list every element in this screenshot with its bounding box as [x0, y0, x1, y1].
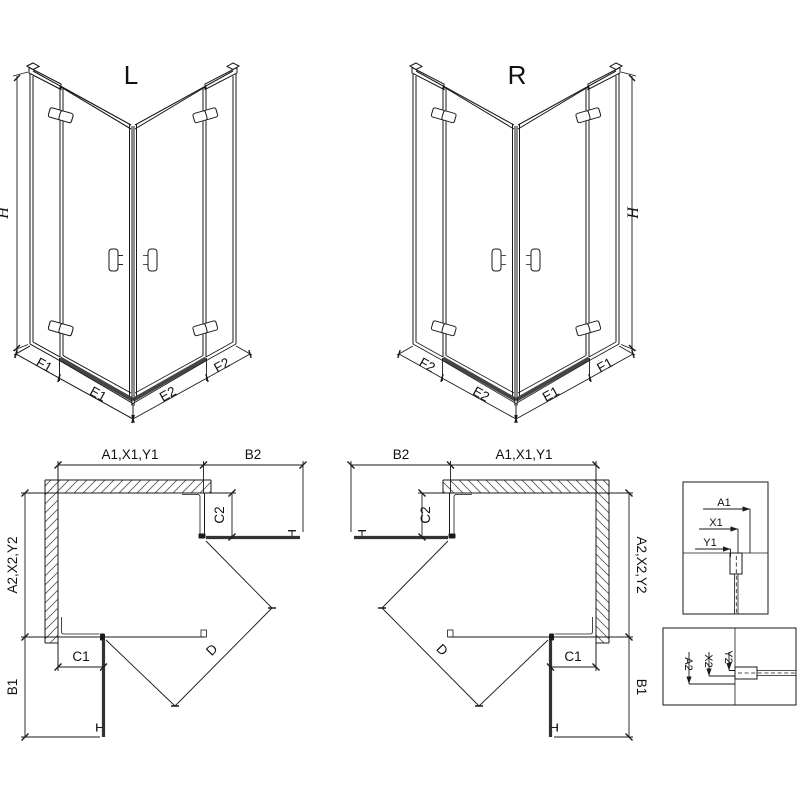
glass-section	[757, 671, 796, 676]
label-c1-left-plan: C1	[72, 649, 89, 664]
label-c1-right-plan: C1	[564, 649, 581, 664]
label-top-chain-left-plan: A1,X1,Y1	[101, 447, 158, 462]
label-f1-left: F1	[34, 355, 55, 376]
label-f2-right: F2	[417, 355, 438, 376]
dim-line-h	[13, 72, 28, 351]
door-pivot-bottom	[100, 634, 105, 641]
arrow-y2	[726, 663, 731, 671]
label-side-chain-right-plan: A2,X2,Y2	[634, 536, 649, 593]
left-wall-half	[14, 63, 134, 423]
label-detail-y1: Y1	[703, 537, 716, 549]
dim-a2-b1	[21, 493, 100, 737]
arrow-y1	[723, 546, 731, 551]
label-side-chain-left-plan: A2,X2,Y2	[5, 536, 20, 593]
label-height-right: H	[625, 206, 642, 220]
fixed-glass-bracket-top	[182, 495, 200, 535]
right-wall-half	[132, 63, 252, 423]
dim-a1-b2	[58, 461, 303, 532]
label-variant-left: L	[124, 60, 138, 90]
fixed-glass-bracket-bottom	[62, 617, 100, 634]
plan-view-geometry	[21, 461, 307, 741]
plan-dimension-geometry	[21, 461, 307, 741]
label-detail-x2: X2	[702, 654, 714, 667]
shower-enclosure-dimension-drawing: L H F1 E1 E2 F2 R H F2 E2 E1 F1 A1,X1,Y1…	[0, 0, 800, 800]
label-detail-a1: A1	[717, 497, 730, 509]
dim-extension-lines	[14, 346, 133, 421]
label-d-right-plan: D	[433, 641, 451, 659]
label-b2-left-plan: B2	[245, 447, 262, 462]
arrow-x1	[731, 526, 739, 531]
door-pivot-right	[199, 534, 206, 539]
side-wall-hatch	[45, 493, 58, 643]
label-detail-a2: A2	[682, 657, 694, 670]
drawing-canvas: L H F1 E1 E2 F2 R H F2 E2 E1 F1 A1,X1,Y1…	[0, 0, 800, 800]
label-c2-left-plan: C2	[212, 506, 227, 523]
label-variant-right: R	[508, 60, 527, 90]
handle-mount	[118, 256, 123, 265]
dim-ticks	[22, 462, 307, 741]
label-height-left: H	[0, 206, 12, 220]
label-c2-right-plan: C2	[418, 506, 433, 523]
arrow-a1	[743, 506, 751, 511]
arrow-a2	[686, 677, 691, 685]
top-wall-hatch	[45, 480, 211, 493]
label-b1-left-plan: B1	[5, 679, 20, 696]
label-top-chain-right-plan: A1,X1,Y1	[495, 447, 552, 462]
right-plan-view-geometry	[348, 461, 634, 741]
label-detail-y2: Y2	[722, 650, 734, 663]
label-f1-right: F1	[594, 355, 615, 376]
label-b1-right-plan: B1	[634, 679, 649, 696]
label-b2-right-plan: B2	[393, 447, 410, 462]
height-dimension-geometry	[13, 72, 28, 351]
label-d-left-plan: D	[203, 641, 221, 659]
arrow-x2	[706, 669, 711, 677]
label-detail-x1: X1	[709, 517, 722, 529]
corner-magnet-profile	[201, 630, 207, 637]
glass-section	[735, 574, 739, 614]
label-f2-left: F2	[211, 355, 232, 376]
dim-d	[106, 541, 272, 706]
